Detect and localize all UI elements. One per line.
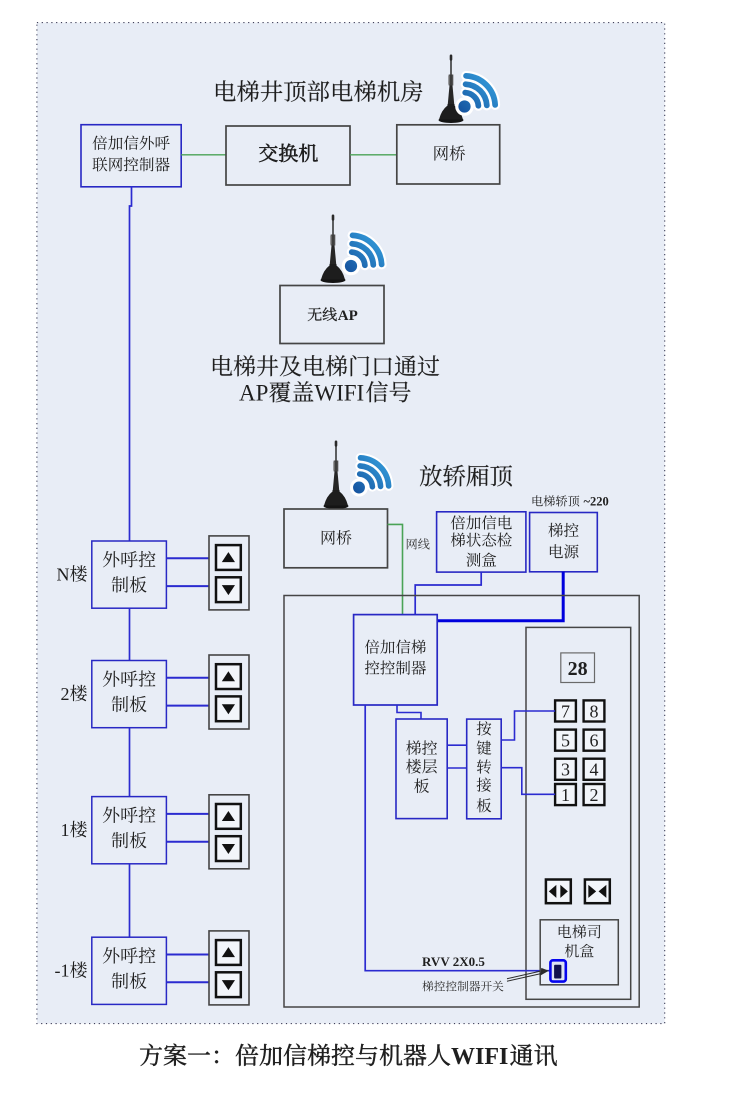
svg-text:AP: AP (239, 381, 268, 406)
svg-text:1: 1 (61, 820, 70, 840)
svg-text:8: 8 (590, 701, 599, 721)
svg-text:~220: ~220 (584, 495, 609, 509)
svg-text:1: 1 (561, 785, 570, 805)
svg-text:-1: -1 (55, 961, 70, 981)
svg-text:2: 2 (590, 785, 599, 805)
svg-text:28: 28 (568, 658, 588, 680)
svg-text:5: 5 (561, 731, 570, 751)
svg-text:AP: AP (338, 308, 358, 324)
svg-text:6: 6 (590, 731, 599, 751)
svg-text:RVV 2X0.5: RVV 2X0.5 (422, 954, 485, 969)
svg-text:N: N (57, 564, 70, 584)
svg-text:4: 4 (590, 760, 599, 780)
svg-text:2: 2 (61, 684, 70, 704)
svg-text:7: 7 (561, 701, 570, 721)
svg-text:WIFI: WIFI (314, 381, 364, 406)
svg-text:3: 3 (561, 760, 570, 780)
svg-text:WIFI: WIFI (451, 1044, 508, 1070)
